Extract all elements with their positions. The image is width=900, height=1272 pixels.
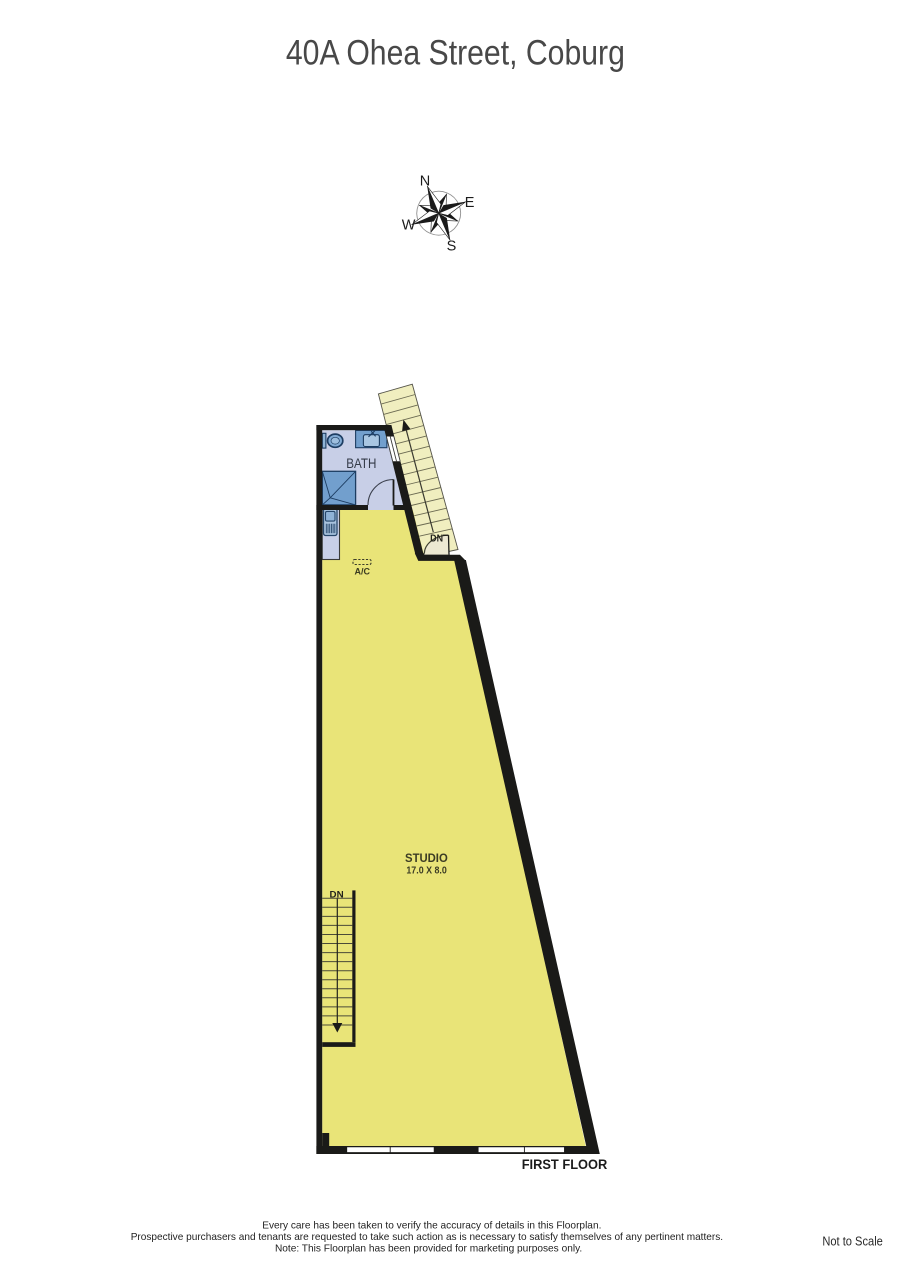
svg-text:A/C: A/C <box>355 567 371 577</box>
svg-text:S: S <box>447 238 457 254</box>
svg-text:17.0 X 8.0: 17.0 X 8.0 <box>406 865 447 876</box>
svg-text:N: N <box>420 174 430 190</box>
svg-text:E: E <box>465 195 475 211</box>
svg-text:STUDIO: STUDIO <box>405 853 448 865</box>
svg-text:DN: DN <box>430 534 443 545</box>
svg-text:Prospective purchasers and ten: Prospective purchasers and tenants are r… <box>131 1231 723 1243</box>
svg-text:DN: DN <box>330 889 344 900</box>
svg-text:40A Ohea Street, Coburg: 40A Ohea Street, Coburg <box>286 33 625 73</box>
svg-text:Note: This Floorplan has been: Note: This Floorplan has been provided f… <box>275 1243 582 1255</box>
svg-text:FIRST FLOOR: FIRST FLOOR <box>522 1157 608 1172</box>
svg-text:BATH: BATH <box>346 456 376 471</box>
svg-text:Not to Scale: Not to Scale <box>822 1234 883 1249</box>
svg-text:W: W <box>402 217 416 233</box>
svg-text:Every care has been taken to v: Every care has been taken to verify the … <box>262 1220 601 1232</box>
